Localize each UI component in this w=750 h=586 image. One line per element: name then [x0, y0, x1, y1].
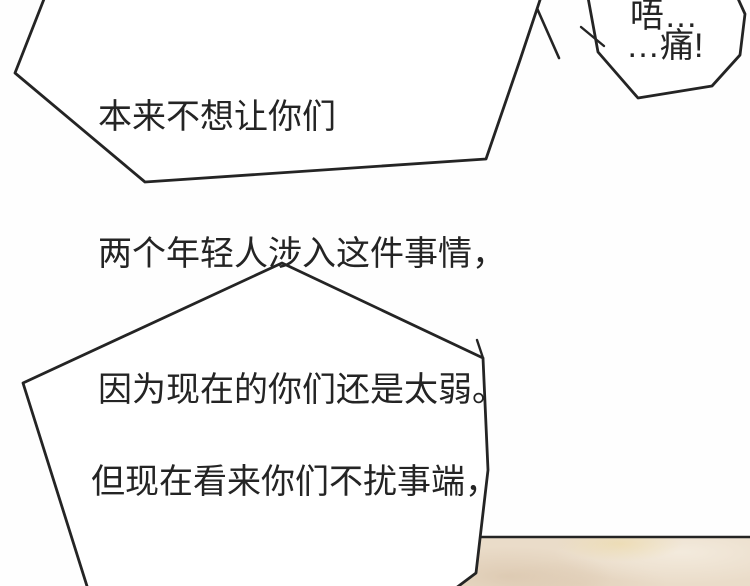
comic-page: 本来不想让你们 两个年轻人涉入这件事情， 因为现在的你们还是太弱。 唔… …痛!… — [0, 0, 750, 586]
narrator-bottom-line: 但现在看来你们不扰事端， — [91, 460, 499, 505]
narrator-bottom-text: 但现在看来你们不扰事端， 这事端自来扰人， 终是不能摆脱， 罢了， 就告诉你们 … — [91, 371, 499, 586]
exclaim-bubble-tail-line — [536, 6, 559, 58]
narrator-top-line: 两个年轻人涉入这件事情， — [98, 232, 506, 278]
narrator-top-line: 本来不想让你们 — [98, 95, 506, 141]
exclaim-text-line-2: …痛! — [626, 24, 703, 69]
